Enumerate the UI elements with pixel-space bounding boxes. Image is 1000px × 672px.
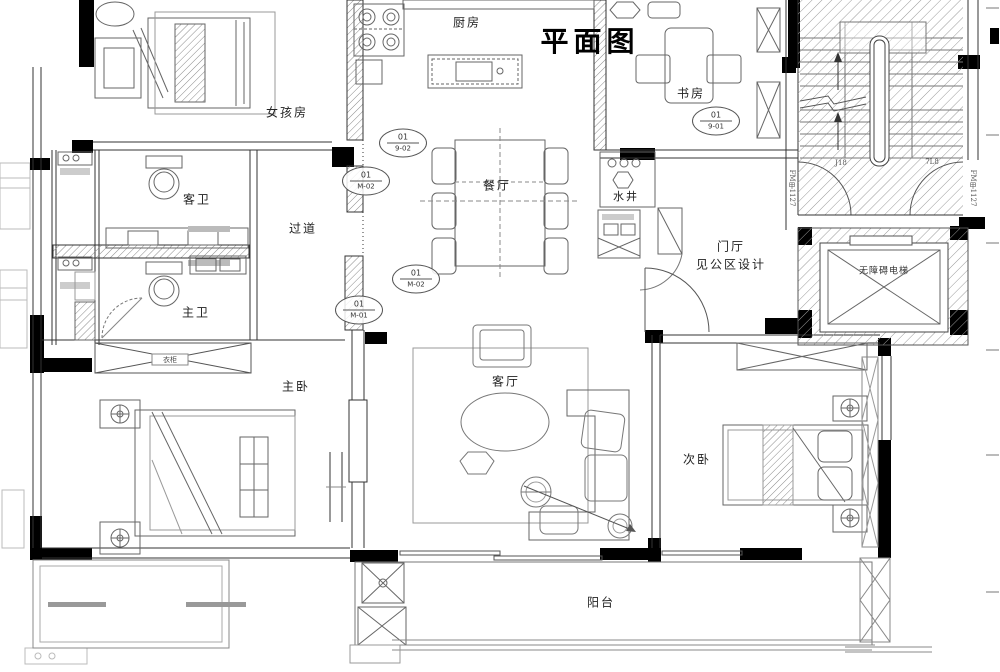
marker-top: 01	[387, 133, 419, 144]
left-window-bay	[33, 560, 246, 648]
right-window-bay	[845, 558, 932, 652]
room-label-hallway: 过道	[289, 220, 317, 237]
master-bath-fixtures	[58, 256, 246, 340]
marker-top: 01	[700, 111, 732, 122]
room-label-foyer-note: 见公区设计	[696, 256, 766, 273]
room-label-study: 书房	[677, 85, 705, 102]
master-bedroom-furniture	[100, 400, 295, 554]
marker-bottom: M-01	[343, 311, 375, 321]
elevation-marker-3: 01 M-02	[392, 265, 440, 294]
elevation-marker-2: 01 M-02	[342, 167, 390, 196]
girls-room-furniture	[95, 2, 275, 114]
elevation-marker-1: 01 9-02	[379, 129, 427, 158]
balcony	[350, 562, 875, 663]
living-room-furniture	[413, 325, 636, 540]
room-label-girls-room: 女孩房	[266, 104, 308, 121]
room-label-elevator: 无障碍电梯	[859, 264, 909, 277]
neighbor-outline	[0, 163, 87, 664]
elevation-marker-4: 01 M-01	[335, 296, 383, 325]
marker-bottom: 9-01	[700, 122, 732, 132]
balcony-doors	[400, 551, 742, 560]
water-shaft	[598, 152, 682, 290]
room-label-kitchen: 厨房	[453, 14, 481, 31]
marker-bottom: M-02	[400, 280, 432, 290]
room-label-foyer: 门厅	[717, 238, 745, 255]
foyer-door	[645, 268, 709, 332]
room-label-balcony: 阳台	[587, 594, 615, 611]
page-title: 平面图	[540, 20, 639, 60]
floorplan-drawing	[0, 0, 1000, 672]
room-label-guest-bath: 客卫	[183, 191, 211, 208]
room-label-dining: 餐厅	[483, 177, 511, 194]
fire-door-tag-left: FM甲1127	[787, 170, 797, 207]
label-wardrobe: 衣柜	[163, 355, 177, 365]
stairwell	[798, 0, 963, 215]
marker-bottom: 9-02	[387, 144, 419, 154]
marker-top: 01	[400, 269, 432, 280]
stair-annotation-left: J18	[835, 159, 847, 167]
elevator-shaft	[798, 228, 968, 345]
marker-top: 01	[350, 171, 382, 182]
floorplan-canvas: 平面图 厨房 女孩房 书房 客卫 过道 餐厅 水井 门厅 见公区设计 无障碍电梯…	[0, 0, 1000, 672]
room-label-master-bedroom: 主卧	[282, 378, 310, 395]
fire-door-tag-right: FM甲1127	[968, 170, 978, 207]
dimension-ticks	[986, 8, 999, 592]
room-label-master-bath: 主卫	[182, 304, 210, 321]
second-bedroom-furniture	[723, 343, 878, 547]
marker-top: 01	[343, 300, 375, 311]
room-label-living-room: 客厅	[492, 373, 520, 390]
stair-annotation-right: 7L8	[925, 158, 939, 166]
marker-bottom: M-02	[350, 182, 382, 192]
elevation-marker-5: 01 9-01	[692, 107, 740, 136]
dining-set	[420, 128, 580, 280]
room-label-water-shaft: 水井	[613, 188, 639, 204]
room-label-second-bedroom: 次卧	[683, 451, 711, 468]
